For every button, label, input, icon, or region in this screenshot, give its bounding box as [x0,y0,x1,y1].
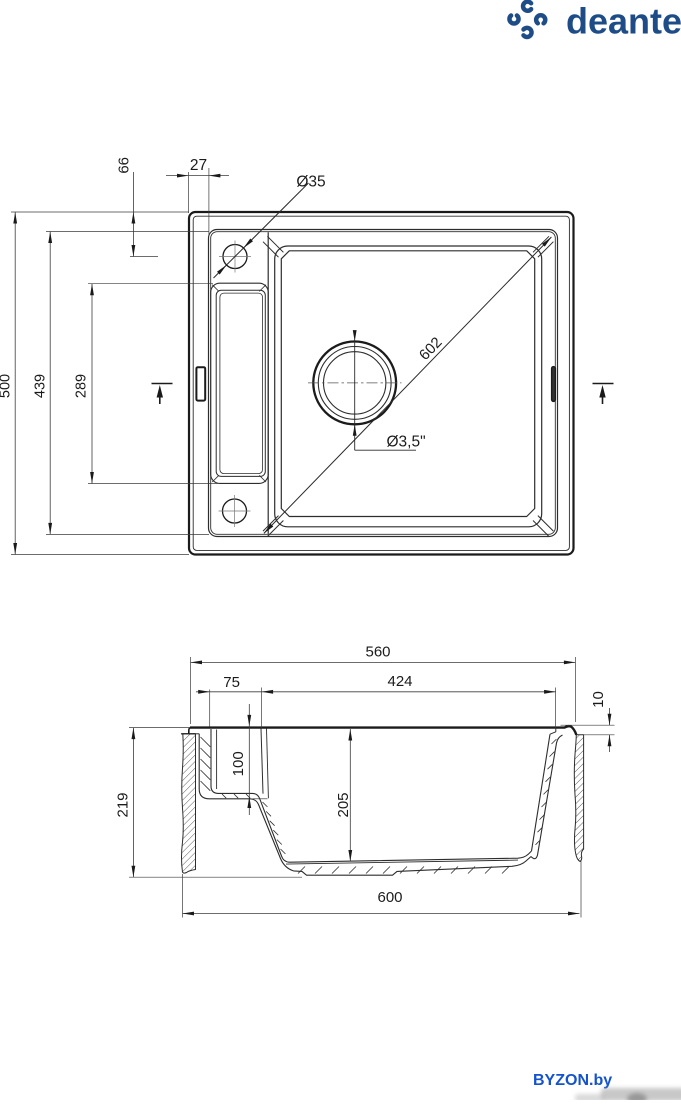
svg-text:439: 439 [32,374,48,398]
svg-text:560: 560 [365,643,390,660]
svg-text:Ø3,5": Ø3,5" [387,434,426,451]
svg-text:100: 100 [230,751,247,776]
svg-text:205: 205 [335,792,352,817]
svg-text:219: 219 [115,792,132,817]
svg-text:600: 600 [377,889,402,906]
svg-text:Ø35: Ø35 [296,174,325,191]
svg-text:424: 424 [387,673,412,690]
svg-text:BYZON.by: BYZON.by [533,1072,612,1089]
svg-text:27: 27 [190,157,207,174]
svg-text:deante: deante [566,1,681,42]
svg-text:10: 10 [590,691,607,708]
svg-text:75: 75 [223,674,240,691]
svg-text:289: 289 [74,374,90,398]
svg-text:66: 66 [116,157,133,174]
svg-text:500: 500 [0,374,14,398]
